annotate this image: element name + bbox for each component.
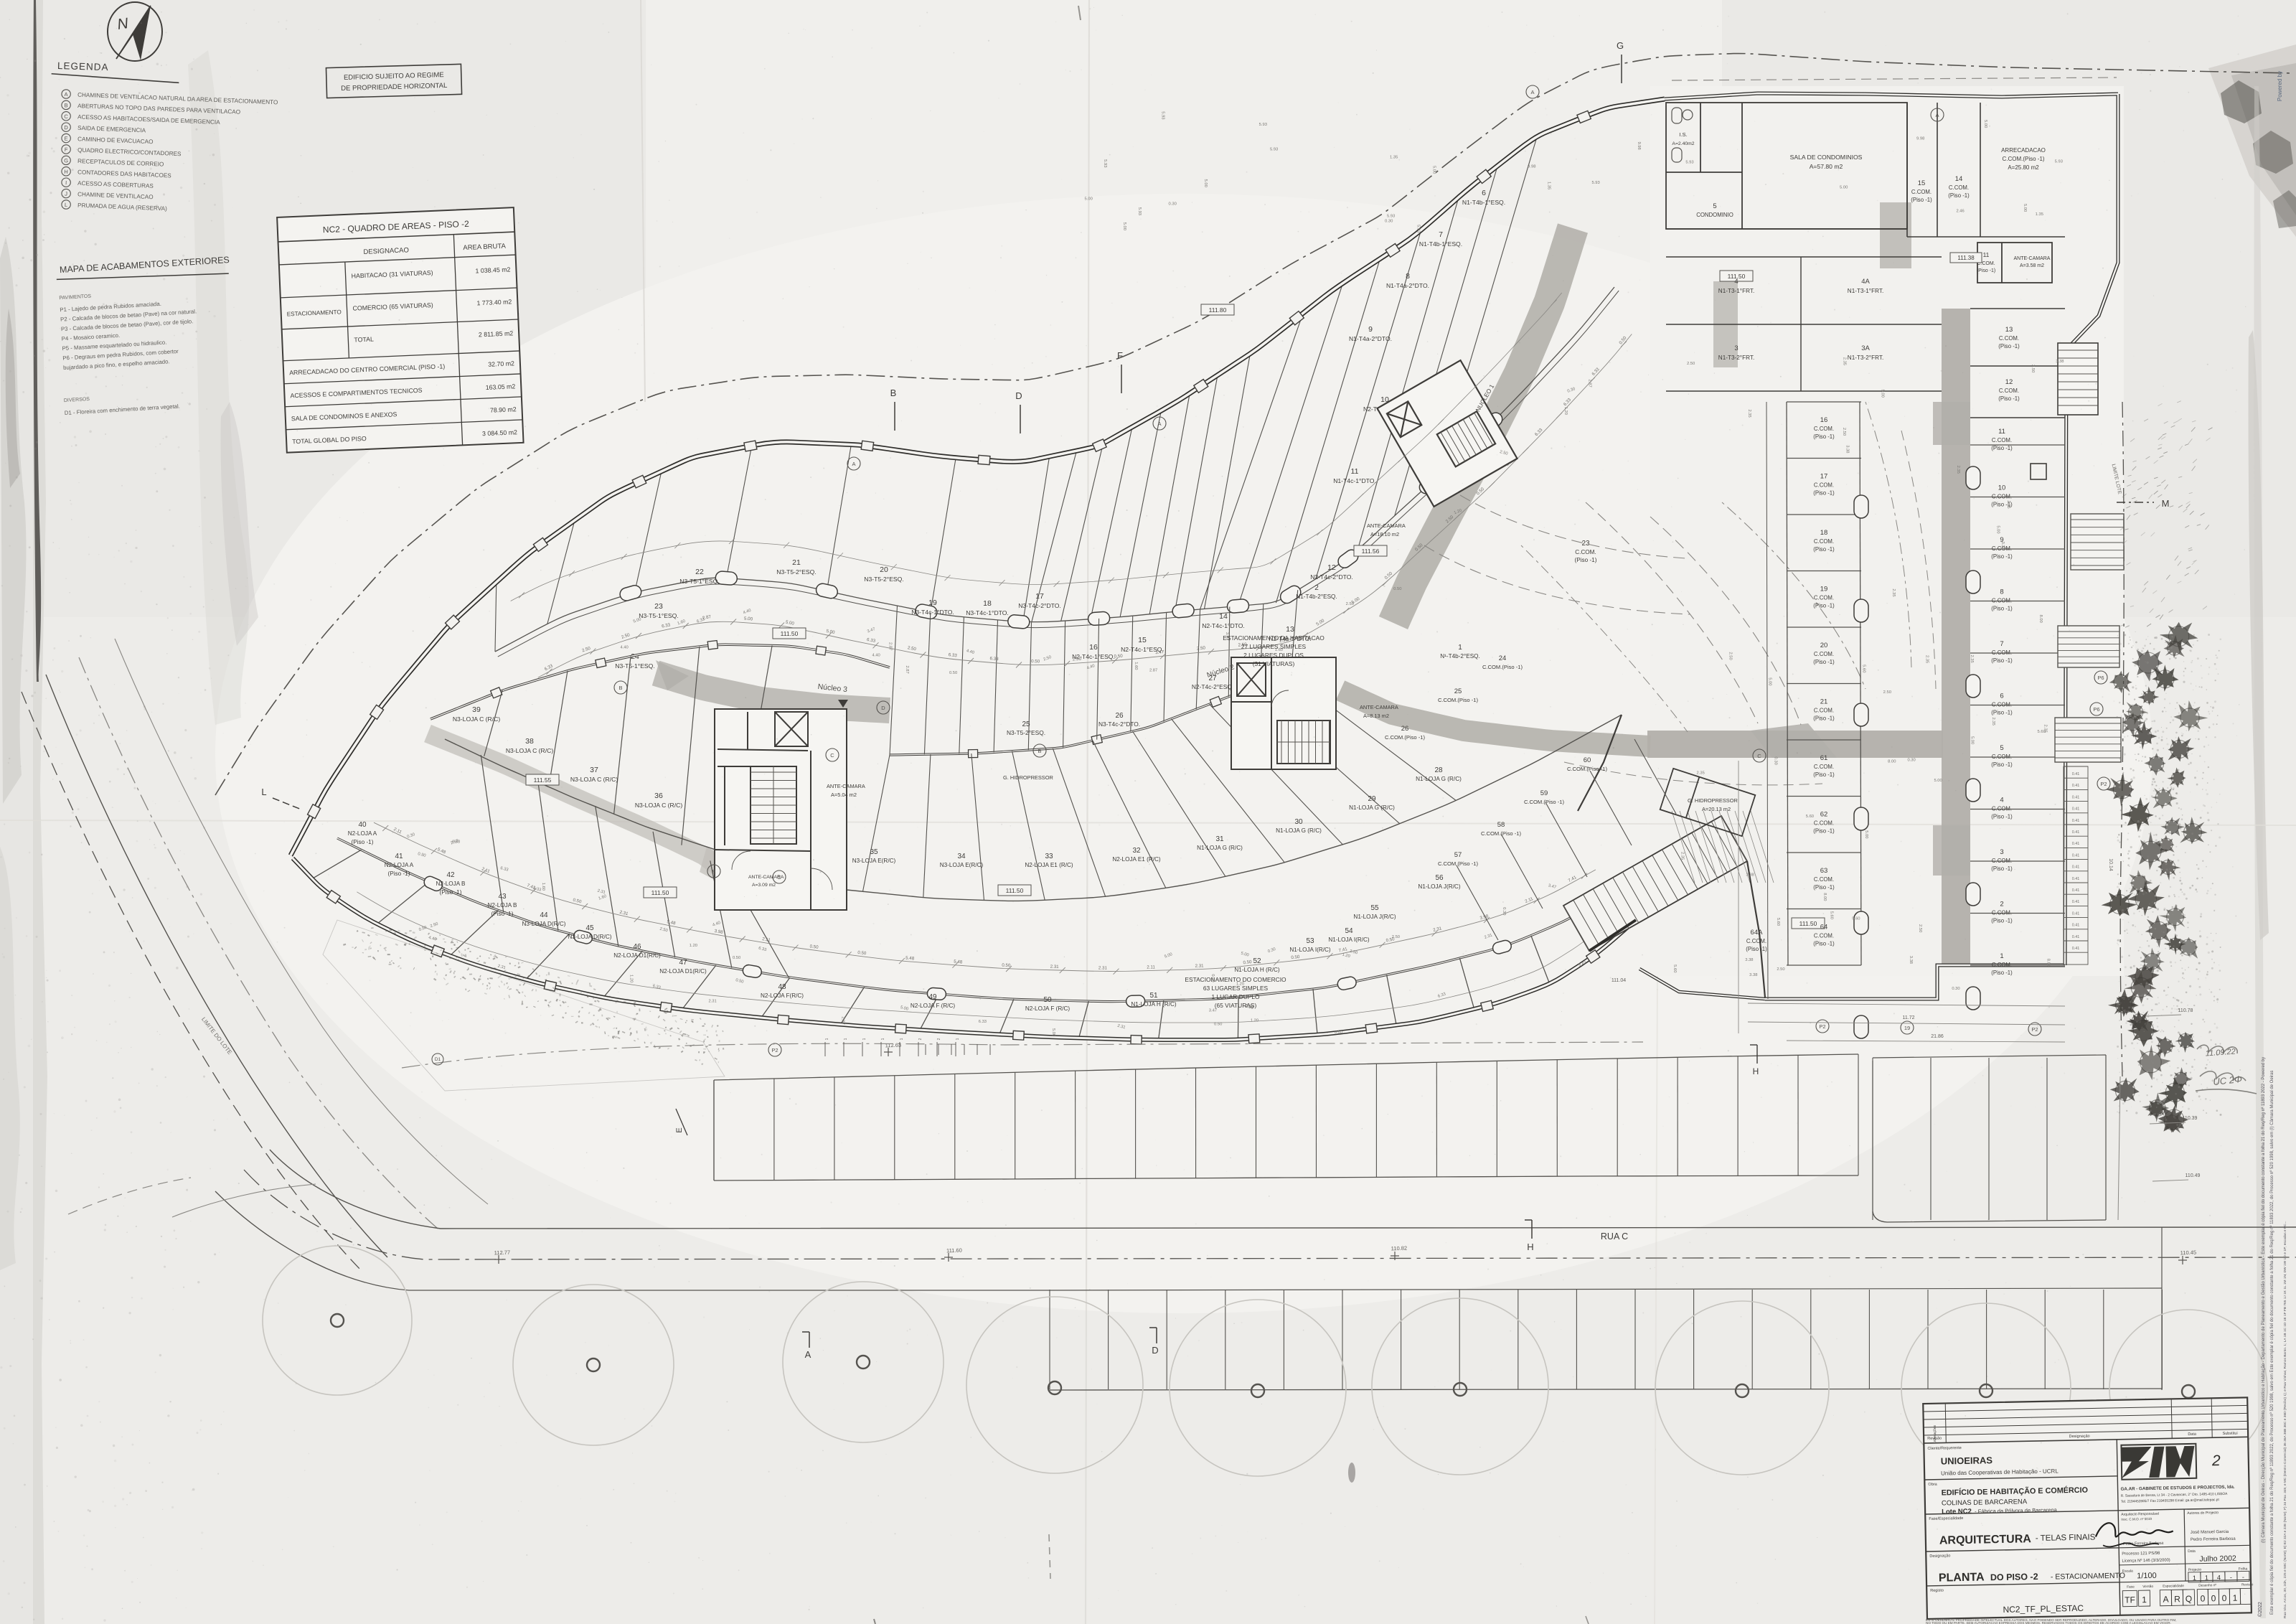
svg-text:2.50: 2.50 <box>1197 645 1206 651</box>
svg-text:C: C <box>1757 753 1761 759</box>
svg-text:5.48: 5.48 <box>954 959 963 965</box>
svg-text:8: 8 <box>2000 588 2003 596</box>
svg-text:42: 42 <box>446 871 455 879</box>
svg-text:(Piso -1): (Piso -1) <box>1813 659 1835 665</box>
svg-text:2.35: 2.35 <box>1842 357 1846 365</box>
svg-text:(Piso -1): (Piso -1) <box>1991 970 2013 976</box>
svg-text:N2-T4c-2°ESQ.: N2-T4c-2°ESQ. <box>1192 683 1233 690</box>
svg-text:(Piso -1): (Piso -1) <box>1948 192 1970 199</box>
svg-text:21: 21 <box>1820 698 1828 706</box>
svg-text:A=3.58 m2: A=3.58 m2 <box>2020 263 2044 268</box>
svg-text:5.00: 5.00 <box>1840 186 1848 190</box>
svg-text:111.60: 111.60 <box>946 1247 962 1254</box>
svg-text:B: B <box>64 102 67 108</box>
svg-text:3.38: 3.38 <box>2000 542 2005 550</box>
svg-text:(Piso -1): (Piso -1) <box>1911 197 1932 203</box>
svg-text:0.41: 0.41 <box>2072 795 2080 799</box>
svg-text:P6: P6 <box>2097 675 2104 681</box>
svg-text:2: 2 <box>2000 901 2003 909</box>
svg-text:(Piso -1): (Piso -1) <box>1746 946 1767 952</box>
svg-text:(Piso -1): (Piso -1) <box>1998 395 2020 402</box>
svg-text:A=8.13 m2: A=8.13 m2 <box>1363 713 1389 719</box>
svg-text:6.33: 6.33 <box>989 656 999 662</box>
svg-text:23: 23 <box>654 602 663 611</box>
svg-text:5.00: 5.00 <box>1983 120 1987 128</box>
svg-text:2: 2 <box>918 1038 923 1040</box>
svg-text:N1-T4b-1°ESQ.: N1-T4b-1°ESQ. <box>1419 240 1462 248</box>
svg-text:5.93: 5.93 <box>1387 215 1395 219</box>
svg-text:C.COM.: C.COM. <box>1746 938 1766 944</box>
svg-text:2.11: 2.11 <box>1147 964 1155 970</box>
svg-text:5.00: 5.00 <box>1864 830 1868 838</box>
svg-text:18: 18 <box>983 599 992 608</box>
svg-text:(Piso -1): (Piso -1) <box>1991 814 2013 820</box>
svg-text:Data: Data <box>2188 1549 2196 1554</box>
svg-text:48: 48 <box>778 983 786 991</box>
svg-text:110.45: 110.45 <box>2180 1249 2197 1257</box>
svg-text:5.93: 5.93 <box>1137 207 1142 215</box>
svg-text:N1-T4c-1°DTO.: N1-T4c-1°DTO. <box>1333 477 1376 484</box>
svg-text:N3-LOJA C (R/C): N3-LOJA C (R/C) <box>635 802 683 809</box>
svg-text:44: 44 <box>540 911 548 919</box>
svg-text:9.98: 9.98 <box>1916 137 1924 141</box>
svg-text:0.41: 0.41 <box>2072 819 2080 823</box>
svg-text:2.87: 2.87 <box>1149 669 1157 673</box>
svg-text:C.COM.: C.COM. <box>1999 335 2019 342</box>
svg-text:A: A <box>2163 1595 2168 1605</box>
svg-text:(Piso -1): (Piso -1) <box>1813 490 1835 497</box>
svg-text:©2022: ©2022 <box>2257 1602 2263 1617</box>
svg-text:0.50: 0.50 <box>949 671 957 675</box>
svg-text:7: 7 <box>2000 640 2003 648</box>
svg-text:8.00: 8.00 <box>1888 759 1896 764</box>
svg-text:E: E <box>64 136 67 142</box>
svg-text:0.50: 0.50 <box>1114 654 1123 660</box>
svg-text:Obra: Obra <box>1928 1483 1937 1487</box>
svg-text:Licença Nº 146 (3/3/2000): Licença Nº 146 (3/3/2000) <box>2122 1557 2170 1563</box>
svg-text:(I) Câmara Municipal de Oei: (I) Câmara Municipal de Oeiras - Direcçã… <box>2261 1057 2266 1543</box>
svg-text:2.35: 2.35 <box>1925 655 1929 663</box>
svg-text:C.COM.: C.COM. <box>1999 388 2019 394</box>
svg-text:0.30: 0.30 <box>1774 757 1778 765</box>
svg-text:3.38: 3.38 <box>1845 445 1850 453</box>
svg-text:0.50: 0.50 <box>1210 974 1215 982</box>
svg-text:N3-LOJA C (R/C): N3-LOJA C (R/C) <box>453 715 501 723</box>
svg-text:38: 38 <box>525 737 534 746</box>
svg-text:C.COM.: C.COM. <box>1814 876 1834 883</box>
svg-text:5.93: 5.93 <box>1161 111 1165 119</box>
svg-text:0.50: 0.50 <box>1291 954 1300 960</box>
svg-text:3 084.50 m2: 3 084.50 m2 <box>482 428 517 437</box>
svg-text:M: M <box>2162 498 2170 509</box>
svg-text:Insc. C.M.O. nº 5019: Insc. C.M.O. nº 5019 <box>2121 1517 2152 1521</box>
svg-text:5.00: 5.00 <box>1881 390 1885 398</box>
svg-text:N1-T4a-2°DTO.: N1-T4a-2°DTO. <box>1349 335 1392 342</box>
svg-text:N1-LOJA I(R/C): N1-LOJA I(R/C) <box>1289 947 1331 953</box>
svg-text:(Piso -1): (Piso -1) <box>1813 433 1835 440</box>
svg-text:N2-LOJA E1 (R/C): N2-LOJA E1 (R/C) <box>1112 856 1161 863</box>
svg-text:1.60: 1.60 <box>1275 648 1283 652</box>
svg-text:2 LUGARES DUPLOS: 2 LUGARES DUPLOS <box>1243 652 1304 659</box>
svg-text:N2-LOJA A: N2-LOJA A <box>385 862 414 868</box>
svg-text:D: D <box>1015 390 1022 401</box>
svg-text:3.47: 3.47 <box>1225 632 1229 640</box>
svg-text:2.50: 2.50 <box>2031 365 2035 372</box>
svg-text:N2-LOJA F(R/C): N2-LOJA F(R/C) <box>761 992 804 999</box>
svg-text:41: 41 <box>395 853 403 860</box>
svg-text:64: 64 <box>1820 924 1828 931</box>
svg-text:Lote NC2: Lote NC2 <box>1942 1508 1972 1516</box>
svg-text:G: G <box>1617 40 1624 51</box>
svg-text:3.47: 3.47 <box>1155 649 1165 655</box>
svg-text:1.60: 1.60 <box>541 883 545 891</box>
svg-text:19: 19 <box>928 599 937 607</box>
svg-text:B: B <box>890 388 897 398</box>
svg-text:Registo: Registo <box>1930 1589 1944 1593</box>
svg-text:5.93: 5.93 <box>1270 147 1278 151</box>
svg-text:N2-LOJA A: N2-LOJA A <box>348 830 377 837</box>
svg-text:5.48: 5.48 <box>905 956 915 962</box>
svg-text:111.50: 111.50 <box>1799 920 1817 927</box>
svg-text:2.50: 2.50 <box>1073 657 1082 662</box>
svg-text:C.COM.: C.COM. <box>1992 962 2012 968</box>
svg-text:10.14: 10.14 <box>2108 858 2113 871</box>
svg-text:J: J <box>65 191 67 197</box>
svg-text:C.COM.: C.COM. <box>1814 764 1834 770</box>
svg-text:C.COM.: C.COM. <box>1814 538 1834 545</box>
svg-text:RUA C: RUA C <box>1601 1231 1628 1242</box>
svg-text:N3-T4c-2°DTO.: N3-T4c-2°DTO. <box>1018 602 1061 609</box>
svg-text:29: 29 <box>1368 795 1376 803</box>
svg-text:N3-T5-2°ESQ.: N3-T5-2°ESQ. <box>776 568 817 576</box>
svg-text:(Piso -1): (Piso -1) <box>1991 657 2013 664</box>
svg-text:N3-LOJA E(R/C): N3-LOJA E(R/C) <box>852 858 896 864</box>
svg-text:17: 17 <box>1035 592 1044 601</box>
svg-text:Alterações: Alterações <box>1933 1424 1937 1442</box>
svg-text:9.98: 9.98 <box>1637 141 1641 149</box>
svg-text:2.87: 2.87 <box>888 642 892 650</box>
svg-text:N1-T3-2°FRT.: N1-T3-2°FRT. <box>1718 355 1754 361</box>
svg-text:C.COM.: C.COM. <box>1992 754 2012 760</box>
svg-text:0.41: 0.41 <box>2072 807 2080 812</box>
svg-text:H: H <box>1527 1242 1533 1252</box>
svg-text:9: 9 <box>1368 325 1373 334</box>
svg-text:N2-LOJA D1(R/C): N2-LOJA D1(R/C) <box>613 952 661 959</box>
svg-text:1: 1 <box>844 1038 848 1040</box>
svg-text:2.35: 2.35 <box>1697 771 1705 775</box>
svg-text:(Piso -1): (Piso -1) <box>1991 761 2013 768</box>
svg-text:30: 30 <box>1294 818 1303 826</box>
svg-text:(Piso -1): (Piso -1) <box>491 911 514 917</box>
svg-text:3.47: 3.47 <box>1209 1008 1217 1013</box>
svg-text:50: 50 <box>1043 996 1052 1004</box>
svg-text:C.COM.: C.COM. <box>1814 708 1834 714</box>
svg-text:14: 14 <box>1219 612 1228 621</box>
svg-text:(Piso -1): (Piso -1) <box>1813 828 1835 835</box>
svg-text:0.41: 0.41 <box>2072 830 2080 835</box>
svg-text:E: E <box>675 1127 684 1132</box>
svg-text:I.S.: I.S. <box>1679 131 1687 138</box>
svg-text:37: 37 <box>590 766 598 774</box>
svg-text:N3-T4c-1°DTO.: N3-T4c-1°DTO. <box>966 609 1009 616</box>
svg-text:5.60: 5.60 <box>1776 918 1780 926</box>
svg-text:-: - <box>2230 1574 2232 1581</box>
svg-text:C.COM.: C.COM. <box>1814 933 1834 939</box>
svg-text:C.COM.: C.COM. <box>1911 189 1932 195</box>
svg-text:Cliente/Requerente: Cliente/Requerente <box>1927 1446 1962 1451</box>
svg-text:2.50: 2.50 <box>1392 935 1400 939</box>
svg-text:5.00: 5.00 <box>1085 197 1093 201</box>
svg-text:110.82: 110.82 <box>1391 1245 1408 1252</box>
svg-text:N2-T4c-1°DTO.: N2-T4c-1°DTO. <box>1202 622 1245 629</box>
svg-text:28: 28 <box>1434 766 1443 774</box>
svg-text:Substitui: Substitui <box>2223 1432 2238 1436</box>
svg-text:C.COM.: C.COM. <box>1992 910 2012 916</box>
svg-text:11.72: 11.72 <box>1903 1015 1915 1020</box>
svg-text:11: 11 <box>1998 428 2005 436</box>
svg-text:D: D <box>64 124 68 131</box>
svg-text:N1-LOJA G (R/C): N1-LOJA G (R/C) <box>1349 804 1395 811</box>
svg-text:2.50: 2.50 <box>1777 967 1784 972</box>
svg-text:5.00: 5.00 <box>1203 179 1208 187</box>
svg-text:A=2.40m2: A=2.40m2 <box>1672 141 1694 146</box>
svg-text:1.35: 1.35 <box>1546 182 1551 189</box>
svg-text:C.COM.: C.COM. <box>1992 702 2012 708</box>
svg-text:(Piso -1): (Piso -1) <box>1991 553 2013 560</box>
svg-text:N1-LOJA H (R/C): N1-LOJA H (R/C) <box>1131 1001 1177 1008</box>
svg-text:2.50: 2.50 <box>1346 602 1354 606</box>
svg-text:21.86: 21.86 <box>1931 1034 1944 1039</box>
svg-text:NO TODO OU EM PARTE, SEM AUTOR: NO TODO OU EM PARTE, SEM AUTORIZACAO EXP… <box>1926 1621 2171 1624</box>
svg-text:TOTAL: TOTAL <box>354 335 374 343</box>
svg-text:N2-LOJA B: N2-LOJA B <box>436 881 466 887</box>
svg-text:63: 63 <box>1820 867 1828 875</box>
svg-text:5.00: 5.00 <box>1122 222 1126 230</box>
svg-text:0.50: 0.50 <box>1335 1031 1342 1035</box>
svg-text:0.30: 0.30 <box>1385 219 1393 223</box>
svg-text:0.41: 0.41 <box>2072 924 2080 928</box>
svg-text:31: 31 <box>1215 835 1224 843</box>
svg-text:60: 60 <box>1584 756 1591 764</box>
svg-text:N2-T4c-2°DTO.: N2-T4c-2°DTO. <box>1310 573 1353 581</box>
svg-text:A: A <box>64 91 67 98</box>
svg-text:Autores do Projecto: Autores do Projecto <box>2187 1511 2219 1516</box>
svg-text:112.77: 112.77 <box>494 1249 511 1257</box>
svg-text:A=57.80 m2: A=57.80 m2 <box>1810 163 1843 170</box>
svg-text:B: B <box>1038 748 1041 754</box>
svg-text:111.56: 111.56 <box>1362 548 1380 555</box>
svg-text:N2-LOJA E1 (R/C): N2-LOJA E1 (R/C) <box>1025 862 1073 868</box>
svg-text:1: 1 <box>825 1038 829 1040</box>
svg-text:5.60: 5.60 <box>1852 916 1860 921</box>
svg-text:0.50: 0.50 <box>1214 1023 1222 1027</box>
svg-text:0.41: 0.41 <box>2072 784 2080 788</box>
svg-text:2.35: 2.35 <box>1991 718 1995 726</box>
svg-text:Julho 2002: Julho 2002 <box>2199 1554 2236 1564</box>
svg-text:C.COM.: C.COM. <box>1814 595 1834 601</box>
svg-text:5.00: 5.00 <box>1432 166 1436 174</box>
svg-text:0.41: 0.41 <box>2072 772 2080 776</box>
svg-text:A=18.10 m2: A=18.10 m2 <box>1370 531 1399 538</box>
svg-text:2.31: 2.31 <box>1195 964 1204 969</box>
svg-text:5.60: 5.60 <box>1829 911 1833 919</box>
svg-text:N3-T5-1°ESQ.: N3-T5-1°ESQ. <box>615 662 655 670</box>
svg-text:C.COM.(Piso -1): C.COM.(Piso -1) <box>1438 860 1479 867</box>
svg-text:DO PISO -2: DO PISO -2 <box>1990 1572 2038 1582</box>
svg-text:20: 20 <box>1820 642 1828 649</box>
svg-text:N3-LOJA E(R/C): N3-LOJA E(R/C) <box>940 862 984 868</box>
svg-text:5.00: 5.00 <box>1970 736 1974 744</box>
svg-text:4A: 4A <box>1861 278 1870 286</box>
svg-text:N1-LOJA G (R/C): N1-LOJA G (R/C) <box>1197 845 1243 851</box>
svg-text:H: H <box>64 169 68 175</box>
svg-text:34: 34 <box>957 853 966 860</box>
svg-text:111.55: 111.55 <box>534 776 552 784</box>
svg-text:54: 54 <box>1345 927 1353 935</box>
svg-text:5.60: 5.60 <box>1672 964 1677 972</box>
svg-text:3.38: 3.38 <box>2056 360 2064 364</box>
svg-text:1: 1 <box>881 1038 885 1040</box>
svg-text:4: 4 <box>2000 797 2003 804</box>
svg-text:(Piso -1): (Piso -1) <box>1813 603 1835 609</box>
svg-text:4.40: 4.40 <box>620 645 628 649</box>
svg-text:2.87: 2.87 <box>841 1016 845 1024</box>
svg-text:N1-LOJA J(R/C): N1-LOJA J(R/C) <box>1418 883 1460 890</box>
svg-text:C.COM.: C.COM. <box>1814 651 1834 657</box>
svg-text:(31 VIATURAS): (31 VIATURAS) <box>1253 660 1295 667</box>
svg-text:21: 21 <box>792 558 801 567</box>
svg-text:Arquitecto Responsável: Arquitecto Responsável <box>2121 1512 2159 1517</box>
svg-text:3: 3 <box>2000 848 2003 856</box>
svg-text:N1-T4b-1°ESQ.: N1-T4b-1°ESQ. <box>1462 199 1505 206</box>
svg-text:(Piso -1): (Piso -1) <box>1813 771 1835 778</box>
svg-text:1.20: 1.20 <box>629 975 634 982</box>
svg-text:N1-T3-1°FRT.: N1-T3-1°FRT. <box>1718 288 1754 294</box>
svg-text:1.35: 1.35 <box>1390 156 1398 160</box>
svg-text:17: 17 <box>1820 473 1828 481</box>
svg-text:C.COM.: C.COM. <box>1814 482 1834 489</box>
svg-text:26: 26 <box>1401 725 1409 733</box>
svg-text:0.41: 0.41 <box>2072 853 2080 858</box>
svg-text:40: 40 <box>358 821 367 829</box>
svg-text:2.31: 2.31 <box>708 1000 716 1004</box>
svg-text:5.00: 5.00 <box>1051 1028 1055 1036</box>
svg-text:Designação: Designação <box>2069 1435 2090 1440</box>
svg-text:163.05 m2: 163.05 m2 <box>486 382 516 391</box>
svg-text:ARRECADACAO: ARRECADACAO <box>2001 147 2046 154</box>
svg-text:58: 58 <box>1497 821 1505 829</box>
svg-text:2.50: 2.50 <box>1687 362 1695 366</box>
svg-text:1: 1 <box>2233 1593 2238 1603</box>
svg-text:36: 36 <box>654 792 663 800</box>
svg-text:D: D <box>1152 1345 1158 1356</box>
svg-text:110.39: 110.39 <box>2183 1116 2198 1121</box>
svg-text:0: 0 <box>2211 1593 2216 1603</box>
svg-text:55: 55 <box>1370 904 1379 912</box>
svg-text:1 773.40 m2: 1 773.40 m2 <box>476 298 512 306</box>
svg-text:13: 13 <box>1286 625 1294 634</box>
svg-text:2.46: 2.46 <box>1956 209 1964 213</box>
svg-text:5.00: 5.00 <box>1995 525 2000 533</box>
svg-text:Data: Data <box>2188 1432 2197 1437</box>
svg-text:0.41: 0.41 <box>2072 842 2080 846</box>
svg-text:32: 32 <box>1132 847 1141 855</box>
svg-text:P2: P2 <box>2031 1026 2038 1033</box>
svg-text:(Piso -1): (Piso -1) <box>1977 268 1995 273</box>
svg-text:0.50: 0.50 <box>1031 659 1040 664</box>
svg-text:6: 6 <box>1482 189 1486 197</box>
svg-text:0: 0 <box>2201 1594 2206 1604</box>
svg-text:111.50: 111.50 <box>1006 887 1024 894</box>
svg-text:Desenho nº: Desenho nº <box>2198 1583 2216 1587</box>
svg-text:20: 20 <box>880 565 888 574</box>
svg-text:3.38: 3.38 <box>1909 956 1913 964</box>
svg-text:53: 53 <box>1306 937 1314 945</box>
svg-text:B: B <box>618 685 622 691</box>
svg-text:N3-LOJA D(R/C): N3-LOJA D(R/C) <box>522 921 566 927</box>
svg-text:N3-LOJA C (R/C): N3-LOJA C (R/C) <box>570 776 618 783</box>
svg-text:25: 25 <box>1022 721 1030 728</box>
svg-text:15: 15 <box>1138 636 1147 644</box>
svg-text:A: A <box>852 461 855 467</box>
svg-text:C.COM.(Piso -1): C.COM.(Piso -1) <box>1524 799 1565 805</box>
svg-text:0.50: 0.50 <box>1002 963 1011 969</box>
svg-text:C: C <box>830 752 834 759</box>
svg-text:L: L <box>65 202 68 208</box>
svg-text:1.20: 1.20 <box>1563 407 1568 415</box>
svg-text:Designação: Designação <box>1929 1554 1950 1559</box>
svg-text:112.63: 112.63 <box>885 1042 902 1049</box>
svg-text:F: F <box>1117 350 1123 361</box>
svg-text:110.78: 110.78 <box>2178 1008 2193 1013</box>
svg-text:3: 3 <box>1734 344 1738 352</box>
svg-text:26: 26 <box>1115 712 1124 720</box>
svg-text:ARQUITECTURA: ARQUITECTURA <box>1939 1533 2032 1546</box>
svg-text:I: I <box>65 179 67 186</box>
svg-text:59: 59 <box>1540 789 1548 797</box>
svg-text:2.50: 2.50 <box>1918 924 1922 932</box>
svg-text:6.33: 6.33 <box>979 1020 987 1024</box>
svg-text:Rua Visc. Arcos, 30, 2dA, 225: Rua Visc. Arcos, 30, 2dA, 225 e 50C (Nor… <box>2283 1221 2287 1618</box>
svg-text:N1-T4b-2°ESQ.: N1-T4b-2°ESQ. <box>1296 593 1337 600</box>
svg-text:F: F <box>65 146 68 153</box>
svg-text:ANTE-CAMARA: ANTE-CAMARA <box>827 783 865 789</box>
svg-text:D: D <box>881 705 885 711</box>
svg-text:5.93: 5.93 <box>1103 159 1107 167</box>
svg-text:(Piso -1): (Piso -1) <box>1991 865 2013 872</box>
svg-text:11: 11 <box>1983 251 1990 258</box>
svg-text:C.COM.(Piso -1): C.COM.(Piso -1) <box>2002 156 2044 162</box>
svg-text:111.04: 111.04 <box>1612 978 1626 983</box>
svg-text:1.20: 1.20 <box>690 944 697 948</box>
svg-text:A: A <box>1935 112 1939 118</box>
svg-text:19: 19 <box>1820 586 1828 593</box>
svg-text:P2: P2 <box>2100 781 2107 787</box>
svg-text:2.50: 2.50 <box>1883 690 1891 695</box>
svg-text:5.93: 5.93 <box>1259 123 1267 127</box>
svg-text:(Piso -1): (Piso -1) <box>1991 710 2013 716</box>
svg-text:H: H <box>1753 1066 1759 1076</box>
svg-text:1.20: 1.20 <box>1251 1018 1258 1023</box>
svg-text:A=5.04 m2: A=5.04 m2 <box>831 792 857 798</box>
svg-text:Pedro Ferreira Barbosa: Pedro Ferreira Barbosa <box>2191 1537 2236 1542</box>
svg-text:1: 1 <box>956 1038 960 1040</box>
svg-text:110.49: 110.49 <box>2186 1173 2201 1178</box>
svg-text:2 811.85 m2: 2 811.85 m2 <box>479 329 514 338</box>
svg-text:12: 12 <box>1327 563 1336 572</box>
svg-text:Escala: Escala <box>2122 1569 2133 1573</box>
svg-text:UNIOEIRAS: UNIOEIRAS <box>1941 1455 1993 1466</box>
